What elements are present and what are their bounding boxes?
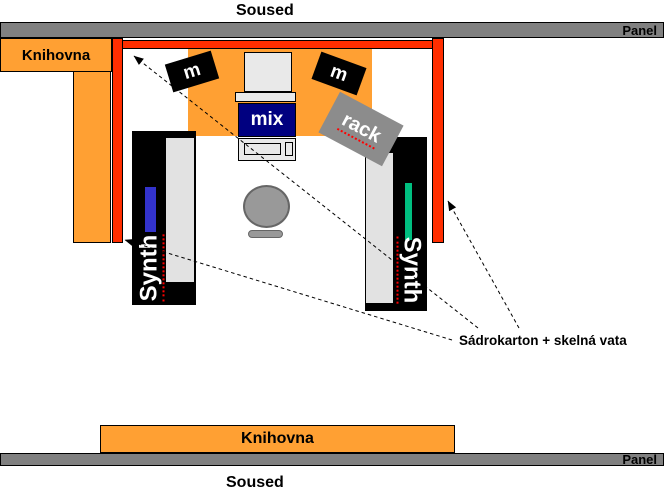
synth-stand-left-stripe (145, 187, 156, 232)
mixer-label: mix (251, 109, 284, 131)
acoustic-strip-right (432, 38, 444, 243)
synth-stand-right: Synth (365, 137, 427, 311)
arrow-to-right-strip (448, 201, 519, 328)
panel-top-label: Panel (622, 23, 657, 37)
synth-right-label: Synth (397, 237, 424, 304)
neighbor-bottom-label: Soused (226, 474, 284, 492)
mixer: mix (238, 103, 296, 137)
acoustic-strip-left (112, 38, 123, 243)
chair (243, 185, 290, 228)
wall-material-annotation: Sádrokarton + skelná vata (459, 333, 627, 348)
synth-stand-right-panel (366, 153, 393, 303)
bookshelf-left: Knihovna (0, 38, 112, 72)
monitor-screen (244, 52, 292, 92)
synth-stand-right-stripe (405, 183, 412, 240)
studio-room-plan: Soused Panel Knihovna mix m m Synth Synt… (0, 0, 664, 493)
synth-stand-left: Synth (132, 131, 196, 305)
synth-stand-left-panel (166, 138, 194, 282)
speaker-right-label: m (327, 60, 350, 86)
neighbor-top-label: Soused (236, 2, 294, 20)
panel-bottom-label: Panel (622, 454, 657, 465)
wall-top: Panel (0, 22, 664, 38)
keyboard-tray (238, 138, 296, 161)
bookshelf-left-column (73, 72, 111, 243)
synth-left-label: Synth (138, 235, 165, 302)
wall-bottom: Panel (0, 453, 664, 466)
monitor-shelf (235, 92, 296, 102)
keyboard-slot (244, 143, 281, 155)
chair-footrest (248, 230, 283, 238)
bookshelf-bottom: Knihovna (100, 425, 455, 453)
acoustic-strip-top (122, 40, 433, 49)
rack-label: rack (337, 109, 384, 149)
bookshelf-bottom-label: Knihovna (241, 430, 314, 448)
bookshelf-left-label: Knihovna (22, 47, 90, 64)
keyboard-module (285, 142, 293, 156)
speaker-left-label: m (181, 59, 204, 85)
